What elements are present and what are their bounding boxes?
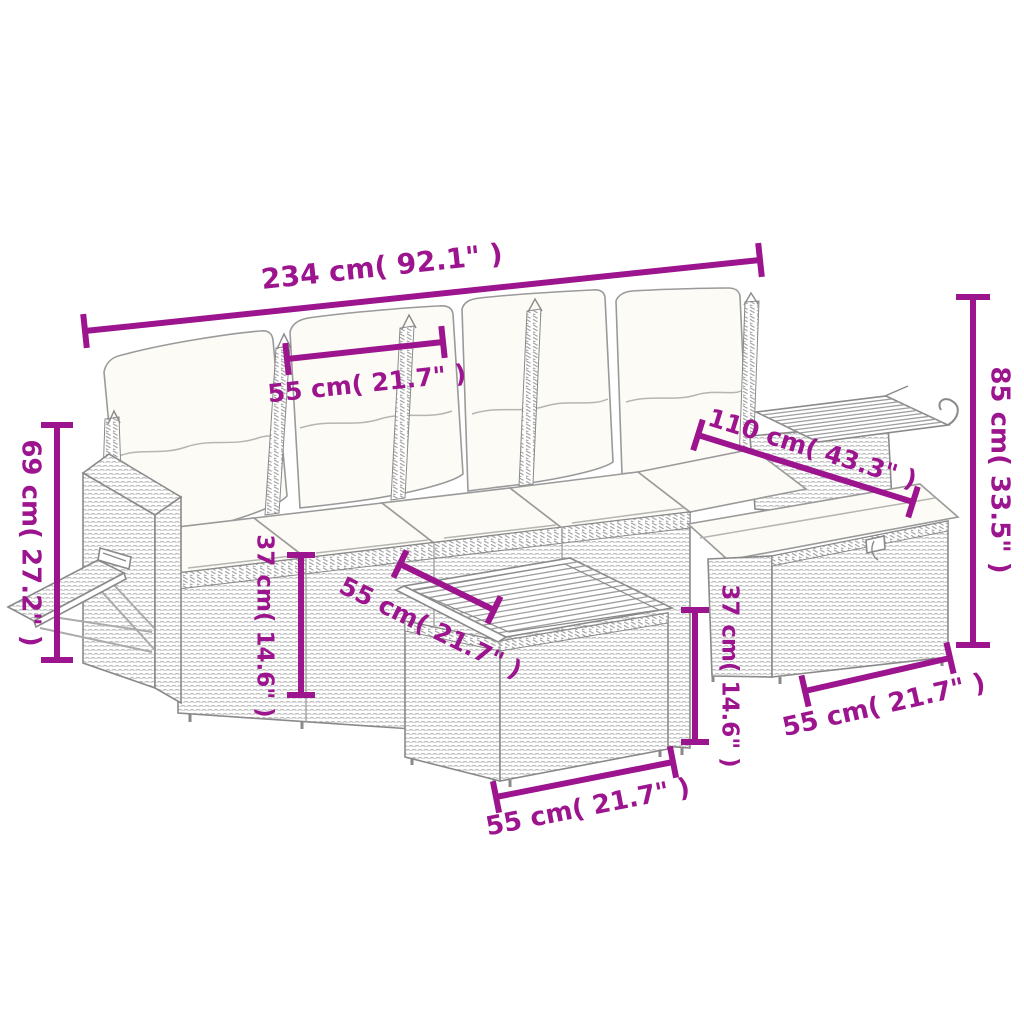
dimension-overall-height: 85 cm( 33.5" )	[956, 297, 1015, 645]
back-pillow-2	[290, 306, 463, 508]
armrest-inner-face	[155, 497, 181, 703]
dimension-label: 234 cm( 92.1" )	[259, 237, 504, 296]
garden-sofa-set-diagram: 234 cm( 92.1" ) 55 cm( 21.7" ) 85 cm( 33…	[0, 0, 1024, 1024]
dimension-label: 37 cm( 14.6" )	[717, 584, 743, 767]
corner-shelf-pole	[885, 386, 908, 396]
dimension-label: 55 cm( 21.7" )	[483, 773, 692, 843]
dimension-label: 37 cm( 14.6" )	[252, 534, 278, 717]
product-dimension-image: 234 cm( 92.1" ) 55 cm( 21.7" ) 85 cm( 33…	[0, 0, 1024, 1024]
dimension-label: 69 cm( 27.2" )	[16, 439, 46, 646]
coffee-table	[396, 558, 672, 787]
ottoman-lid-handle	[866, 536, 885, 553]
rattan-curl	[939, 399, 957, 425]
dimension-label: 85 cm( 33.5" )	[985, 366, 1015, 573]
dimension-armrest-height: 69 cm( 27.2" )	[16, 425, 74, 660]
